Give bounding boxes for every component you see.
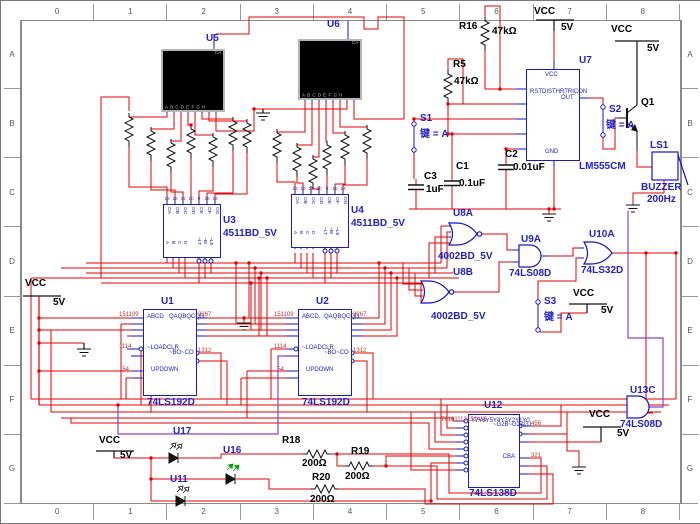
vcc-label: VCC (534, 6, 555, 17)
chip-u7[interactable] (526, 69, 580, 161)
vcc-label: VCC (589, 409, 610, 420)
display-u5[interactable]: CA ABCDEFGH (161, 49, 225, 112)
gate-u13c-symbol (627, 396, 649, 418)
u2-clock-pins: UPDOWN (306, 367, 333, 374)
u7-gnd-pin: GND (545, 149, 558, 156)
pin-number: 12 (460, 417, 467, 423)
pin-label: ~LOAD (147, 345, 167, 351)
u12-part-label: 74LS138D (469, 488, 517, 499)
u12-y-pin-numbers: 79101112131415 (441, 417, 454, 424)
u1-input-pin-numbers: 151109 (119, 312, 129, 319)
u8b-label: U8B (453, 267, 473, 278)
pin-label: ~CO (181, 350, 194, 356)
pin-label: QA (169, 314, 178, 320)
gate-u8a-symbol (449, 223, 477, 245)
u4-top-pins: OAOBOCODOEOFOG (292, 197, 348, 206)
pin-label: OF (333, 197, 339, 204)
capacitor-c1-symbol (444, 181, 460, 186)
r20-label: R20 (312, 472, 330, 483)
u4-part-label: 4511BD_5V (351, 218, 405, 229)
display-ca-pin: CA (351, 41, 358, 46)
u3-top-pins: OAOBOCODOEOFOG (164, 207, 220, 216)
pin-number: 9 (195, 197, 203, 202)
u1-input-pins: ABCD (147, 314, 164, 321)
pin-number: 14 (280, 344, 287, 350)
segment-pin-label: C (175, 106, 178, 110)
u3-input-pins: ABCD (164, 241, 188, 245)
pin-number: 7 (208, 312, 211, 318)
u4-top-pin-numbers: 1312111091514 (291, 187, 347, 192)
u4-control-pins: ~LT~BI~LE (322, 227, 340, 238)
segment-pin-label: C (312, 94, 315, 98)
pin-label: DOWN (159, 367, 178, 373)
q1-label: Q1 (641, 97, 654, 108)
pin-number: 15 (203, 197, 211, 202)
r19-value: 200Ω (345, 471, 370, 482)
pin-label: ~CO (336, 350, 349, 356)
r16-value: 47kΩ (492, 26, 517, 37)
resistor-r18-symbol (303, 450, 331, 458)
pin-label: D (314, 314, 318, 320)
ls1-label: LS1 (650, 140, 668, 151)
u4-label: U4 (351, 205, 364, 216)
pin-label: RST (530, 89, 542, 95)
pin-label: QC (341, 314, 350, 320)
u1-output-pins: QAQBQCQD (169, 314, 191, 321)
u10a-part-label: 74LS32D (581, 265, 623, 276)
switch-s3-symbol (536, 300, 540, 304)
pin-number: 15 (119, 312, 126, 318)
segment-pin-label: D (318, 94, 321, 98)
segment-pin-label: E (323, 94, 326, 98)
pin-label: OE (325, 197, 331, 204)
u2-carry-pin-numbers: 1312 (353, 347, 366, 355)
ls1-type-label: BUZZER (641, 182, 682, 193)
pin-label: ~LE (209, 237, 214, 246)
vcc-label: VCC (611, 24, 632, 35)
r16-label: R16 (459, 21, 477, 32)
pin-label: ~BI (203, 237, 208, 246)
s3-key: 键 = A (544, 308, 573, 323)
segment-pin-label: A (302, 94, 305, 98)
v5-label: 5V (601, 305, 613, 316)
u9a-part-label: 74LS08D (509, 268, 551, 279)
capacitor-c2-symbol (498, 165, 514, 170)
pin-number: 13 (353, 348, 360, 354)
u2-control-pin-numbers: 1114 (274, 344, 284, 351)
pin-label: OB (301, 197, 307, 204)
pin-label: B (171, 241, 176, 244)
pin-label: ~LT (197, 237, 202, 246)
led-u16-symbol (226, 474, 235, 484)
pin-label: QA (324, 314, 333, 320)
pin-label: ~BI (329, 227, 334, 236)
u16-label: U16 (223, 445, 241, 456)
pin-number: 4 (281, 367, 284, 373)
segment-pin-label: G (196, 106, 199, 110)
schematic-canvas[interactable]: 012345678 012345678 ABCDEFG ABCDEFG (0, 0, 700, 524)
pin-label: OB (173, 207, 179, 214)
display-segment-pins: ABCDEFGH (165, 106, 205, 110)
u17-label: U17 (173, 426, 191, 437)
r20-value: 200Ω (310, 494, 335, 505)
segment-pin-label: H (339, 94, 342, 98)
pin-label: OG (341, 197, 347, 204)
c2-value: 0.01uF (513, 162, 545, 173)
pin-number: 11 (307, 187, 315, 192)
u7-part-label: LM555CM (579, 161, 626, 172)
ground-symbol (626, 205, 640, 212)
c1-value: 0.1uF (459, 178, 485, 189)
u1-part-label: 74LS192D (147, 397, 195, 408)
u8b-part-label: 4002BD_5V (431, 311, 485, 322)
pin-number: 12 (360, 348, 367, 354)
pin-label: OG (213, 207, 219, 214)
pin-label: OD (189, 207, 195, 214)
u1-control-pin-numbers: 1114 (119, 344, 129, 351)
pin-number: 13 (467, 417, 474, 423)
pin-number: 1 (538, 453, 541, 459)
c3-value: 1uF (426, 184, 444, 195)
pin-label: OA (165, 207, 171, 214)
vcc-label: VCC (25, 278, 46, 289)
switch-s2-symbol (601, 105, 605, 109)
u12-label: U12 (484, 400, 502, 411)
gate-u10a-symbol (584, 242, 612, 264)
segment-pin-label: H (202, 106, 205, 110)
pin-number: 13 (198, 348, 205, 354)
s2-key: 键 = A (606, 116, 635, 131)
resistor-r20-symbol (311, 485, 339, 493)
pin-label: A (293, 231, 298, 234)
buzzer-ls1-symbol[interactable] (652, 152, 688, 185)
u13c-label: U13C (630, 385, 656, 396)
vcc-label: VCC (573, 288, 594, 299)
led-u11-symbol (176, 496, 185, 506)
resistor-r16-symbol (481, 17, 489, 51)
u12-select-pins: CBA (501, 454, 515, 462)
gate-u9a-symbol (519, 245, 541, 267)
pin-number: 14 (211, 197, 219, 202)
u2-output-pins: QAQBQCQD (324, 314, 346, 321)
u8a-part-label: 4002BD_5V (438, 251, 492, 262)
r18-value: 200Ω (302, 458, 327, 469)
u3-part-label: 4511BD_5V (223, 228, 277, 239)
pin-label: ~LOAD (302, 345, 322, 351)
u2-input-pins: ABCD (302, 314, 319, 321)
display-u6[interactable]: CA ABCDEFGH (298, 39, 362, 100)
s3-label: S3 (544, 296, 556, 307)
pin-number: 14 (339, 187, 347, 192)
u8a-label: U8A (453, 208, 473, 219)
u12-enable-pin-numbers: 456 (531, 421, 541, 429)
resistor-r5-symbol (444, 70, 452, 104)
pin-label: QC (186, 314, 195, 320)
u6-label: U6 (327, 19, 340, 30)
c3-label: C3 (424, 171, 437, 182)
pin-label: ~BO (324, 350, 336, 356)
r18-label: R18 (282, 435, 300, 446)
ground-symbol (572, 467, 586, 474)
pin-label: OF (205, 207, 211, 214)
pin-label: ~G2B (493, 422, 509, 428)
vcc-label: VCC (99, 435, 120, 446)
c1-label: C1 (456, 161, 469, 172)
pin-number: 13 (163, 197, 171, 202)
pin-label: B (299, 231, 304, 234)
pin-label: OD (317, 197, 323, 204)
pin-number: 9 (290, 312, 293, 318)
u2-output-pin-numbers: 3267 (353, 312, 366, 319)
s1-label: S1 (420, 113, 432, 124)
segment-pin-label: A (165, 106, 168, 110)
u4-input-pins: ABCD (292, 231, 316, 235)
u2-part-label: 74LS192D (302, 397, 350, 408)
pin-label: OA (293, 197, 299, 204)
s1-key: 键 = A (420, 125, 449, 140)
u2-clock-pin-numbers: 54 (274, 367, 284, 374)
u7-vcc-pin: VCC (545, 72, 558, 79)
pin-number: 15 (480, 417, 487, 423)
pin-label: C (177, 241, 182, 244)
r5-label: R5 (453, 59, 466, 70)
segment-pin-label: D (181, 106, 184, 110)
pin-number: 12 (171, 197, 179, 202)
pin-label: D (311, 231, 316, 234)
u2-label: U2 (316, 296, 329, 307)
v5-label: 5V (53, 297, 65, 308)
segment-pin-label: F (192, 106, 195, 110)
v5-label: 5V (561, 22, 573, 33)
capacitor-c3-symbol (408, 185, 424, 190)
pin-label: A (511, 454, 515, 460)
u3-control-pins: ~LT~BI~LE (196, 237, 214, 248)
pin-number: 6 (538, 421, 541, 427)
display-ca-pin: CA (214, 51, 221, 56)
u1-label: U1 (161, 296, 174, 307)
resistor-r19-symbol (345, 462, 373, 470)
pin-number: 9 (135, 312, 138, 318)
segment-pin-label: E (186, 106, 189, 110)
segment-pin-label: F (329, 94, 332, 98)
pin-label: OE (197, 207, 203, 214)
switch-s1-symbol (412, 122, 416, 126)
u1-carry-pins: ~BO~CO (169, 349, 191, 357)
pin-label: A (165, 241, 170, 244)
u1-clock-pins: UPDOWN (151, 367, 178, 374)
u2-carry-pins: ~BO~CO (324, 349, 346, 357)
u3-label: U3 (223, 215, 236, 226)
pin-number: 10 (187, 197, 195, 202)
u7-label: U7 (579, 55, 592, 66)
pin-number: 15 (331, 187, 339, 192)
u11-label: U11 (170, 474, 188, 485)
pin-label: ~LT (323, 227, 328, 236)
led-u17-symbol (169, 453, 178, 463)
ground-symbols[interactable] (77, 113, 640, 474)
pin-number: 12 (299, 187, 307, 192)
u7-out-pin: OUT (561, 95, 574, 102)
pin-number: 12 (205, 348, 212, 354)
u3-top-pin-numbers: 1312111091514 (163, 197, 219, 202)
r19-label: R19 (351, 446, 369, 457)
u2-input-pin-numbers: 151109 (274, 312, 284, 319)
pin-label: CON (574, 89, 587, 95)
pin-number: 4 (126, 367, 129, 373)
pin-number: 15 (274, 312, 281, 318)
u10a-label: U10A (589, 229, 615, 240)
u12-select-pin-numbers: 321 (531, 453, 541, 461)
u1-clock-pin-numbers: 54 (119, 367, 129, 374)
ground-symbol (256, 113, 270, 120)
pin-label: D (159, 314, 163, 320)
u5-label: U5 (206, 33, 219, 44)
pin-number: 9 (323, 187, 331, 192)
pin-number: 10 (315, 187, 323, 192)
pin-label: D (183, 241, 188, 244)
gate-u8b-symbol (421, 281, 449, 303)
pin-label: ~BO (169, 350, 181, 356)
v5-label: 5V (120, 450, 132, 461)
r5-value: 47kΩ (454, 76, 479, 87)
pin-label: DIS (542, 89, 552, 95)
pin-label: DOWN (314, 367, 333, 373)
v5-label: 5V (617, 428, 629, 439)
u12-enable-pins: ~G2B~G2AG1 (493, 422, 516, 430)
pin-label: ~LE (335, 227, 340, 236)
segment-pin-label: G (333, 94, 336, 98)
u1-output-pin-numbers: 3267 (198, 312, 211, 319)
u1-carry-pin-numbers: 1312 (198, 347, 211, 355)
pin-label: OC (181, 207, 187, 214)
pin-number: 14 (125, 344, 132, 350)
segment-pin-label: B (307, 94, 310, 98)
s2-label: S2 (609, 104, 621, 115)
pin-number: 11 (179, 197, 187, 202)
pin-label: ~G2A (509, 422, 525, 428)
pin-label: C (305, 231, 310, 234)
pin-label: OC (309, 197, 315, 204)
pin-number: 7 (363, 312, 366, 318)
ls1-freq-label: 200Hz (647, 194, 676, 205)
ground-symbol (542, 214, 556, 221)
c2-label: C2 (505, 149, 518, 160)
u7-left-pins: RSTDISTHRTRICON (530, 85, 587, 100)
u9a-label: U9A (521, 234, 541, 245)
segment-pin-label: B (170, 106, 173, 110)
ground-symbol (77, 349, 91, 356)
display-segment-pins: ABCDEFGH (302, 94, 342, 98)
v5-label: 5V (647, 43, 659, 54)
pin-number: 13 (291, 187, 299, 192)
